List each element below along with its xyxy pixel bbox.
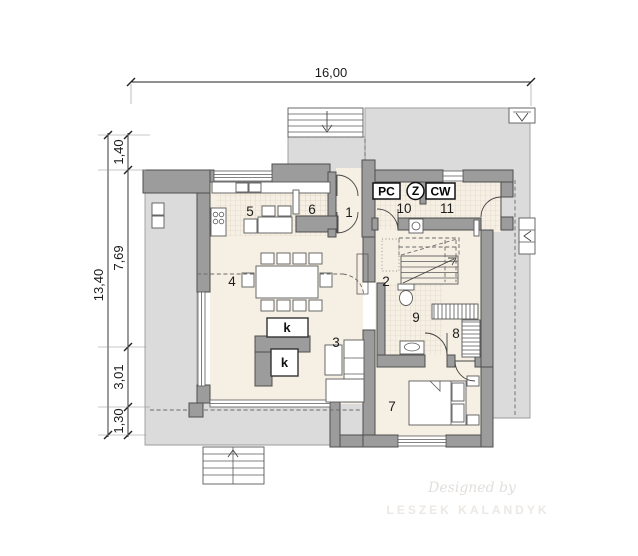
dim-left-segment-4: 1,30 — [111, 408, 126, 433]
dim-top-width: 16,00 — [315, 65, 348, 80]
room-label-4: 4 — [228, 274, 236, 289]
kitchen-stove — [211, 208, 226, 236]
sofa-set — [325, 340, 364, 402]
kitchen-counter — [212, 182, 330, 193]
watermark-author: LESZEK KALANDYK — [386, 503, 549, 517]
fireplace-lower-label: k — [281, 355, 289, 370]
room-label-11: 11 — [440, 201, 454, 216]
drain-symbol-right — [519, 218, 535, 254]
toilet — [398, 284, 414, 306]
pantry-shelf — [293, 190, 299, 214]
room-label-6: 6 — [308, 202, 316, 217]
room-label-1: 1 — [345, 205, 353, 220]
washbasin-bath — [400, 341, 424, 354]
watermark-byline: Designed by — [427, 480, 517, 496]
kitchen-window — [214, 171, 272, 181]
utility-window — [443, 171, 463, 181]
terrace-column — [189, 403, 203, 417]
radiator-utility — [474, 220, 479, 236]
bedroom-window — [398, 436, 446, 446]
living-glass-wall-south — [210, 400, 330, 407]
cw-label: CW — [431, 185, 452, 199]
dim-left-segment-3: 3,01 — [111, 364, 126, 389]
room-label-5: 5 — [246, 204, 254, 219]
z-label: Z — [412, 184, 419, 198]
dim-left-segment-1: 1,40 — [111, 139, 126, 164]
room-label-9: 9 — [412, 310, 420, 325]
pc-label: PC — [378, 185, 395, 199]
room-label-3: 3 — [332, 335, 340, 350]
washbasin-utility — [409, 219, 423, 233]
floor-plan: 16,00 13,40 1,40 7,69 3,01 1,30 PC Z CW … — [0, 0, 638, 556]
garden-steps — [203, 447, 264, 484]
watermark: Designed by LESZEK KALANDYK — [386, 480, 549, 517]
room-label-8: 8 — [452, 326, 460, 341]
living-glass-wall-west — [198, 292, 205, 386]
dim-left-total: 13,40 — [91, 269, 106, 302]
drain-symbol-top-right — [509, 108, 535, 123]
room-label-2: 2 — [382, 274, 390, 289]
dim-left-segment-2: 7,69 — [111, 245, 126, 270]
room-label-10: 10 — [396, 201, 411, 216]
room-label-7: 7 — [388, 399, 396, 414]
fireplace-upper-label: k — [283, 320, 291, 335]
